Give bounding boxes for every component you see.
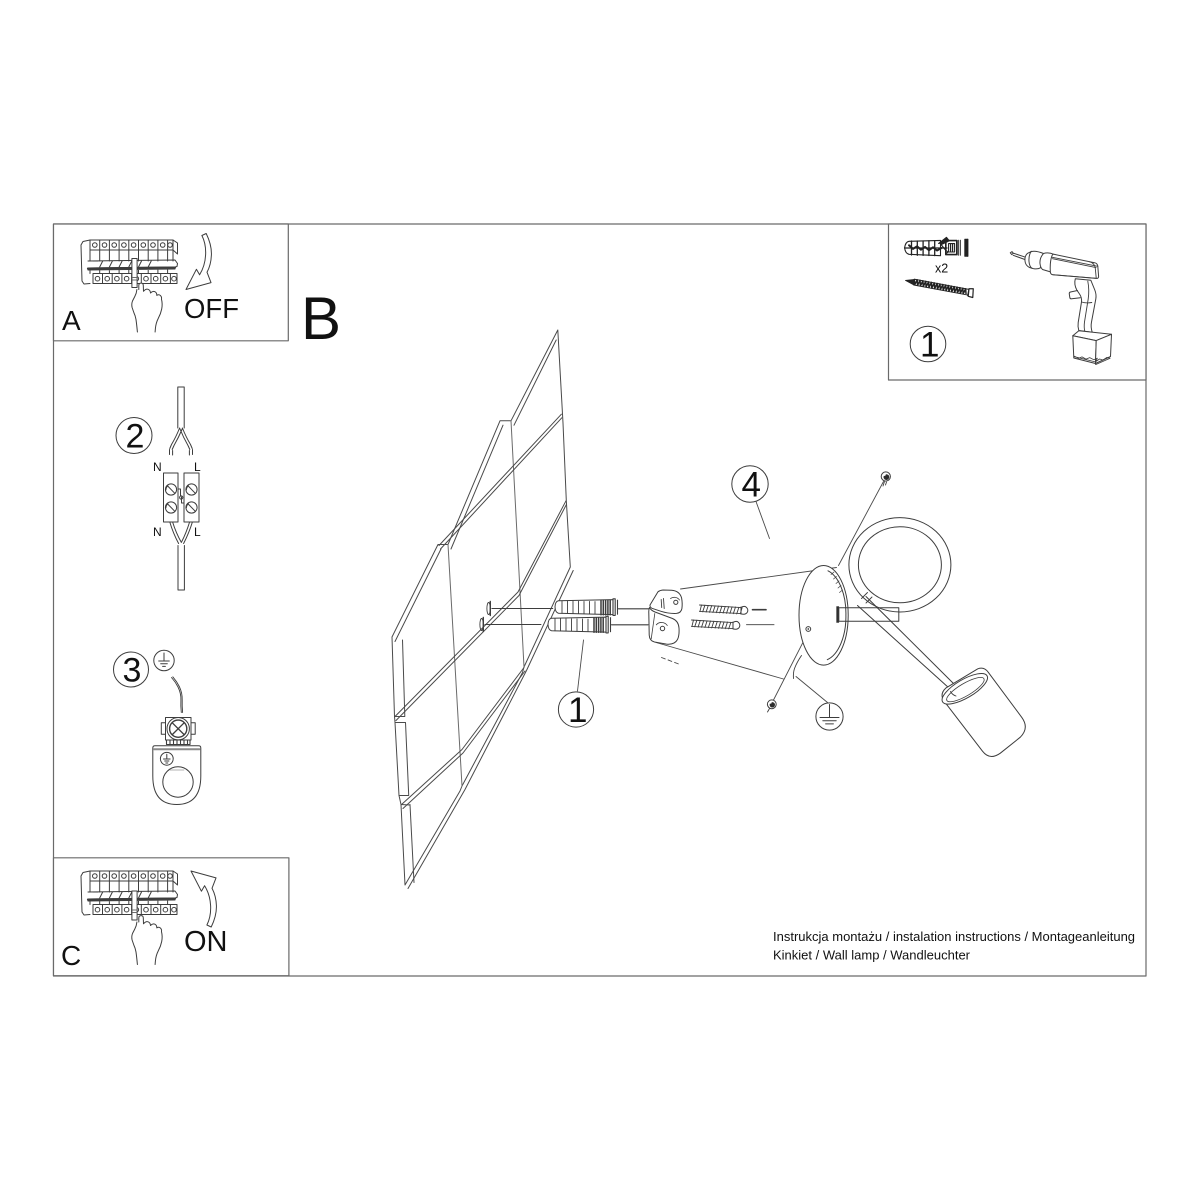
svg-text:B: B (301, 285, 341, 352)
svg-text:4: 4 (742, 466, 761, 505)
svg-text:A: A (62, 305, 81, 336)
svg-text:1: 1 (920, 326, 939, 365)
svg-text:1: 1 (568, 691, 587, 730)
svg-text:C: C (61, 940, 81, 971)
svg-text:L: L (194, 460, 201, 474)
svg-text:Kinkiet / Wall lamp / Wandleuc: Kinkiet / Wall lamp / Wandleuchter (773, 948, 971, 963)
svg-text:N: N (153, 460, 162, 474)
svg-text:Instrukcja montażu / instalati: Instrukcja montażu / instalation instruc… (773, 929, 1135, 944)
svg-text:ON: ON (184, 926, 228, 958)
svg-text:OFF: OFF (184, 293, 239, 324)
svg-text:L: L (194, 525, 201, 539)
svg-text:2: 2 (126, 418, 145, 456)
svg-text:x2: x2 (935, 262, 948, 276)
svg-text:N: N (153, 525, 162, 539)
svg-text:3: 3 (123, 652, 142, 690)
